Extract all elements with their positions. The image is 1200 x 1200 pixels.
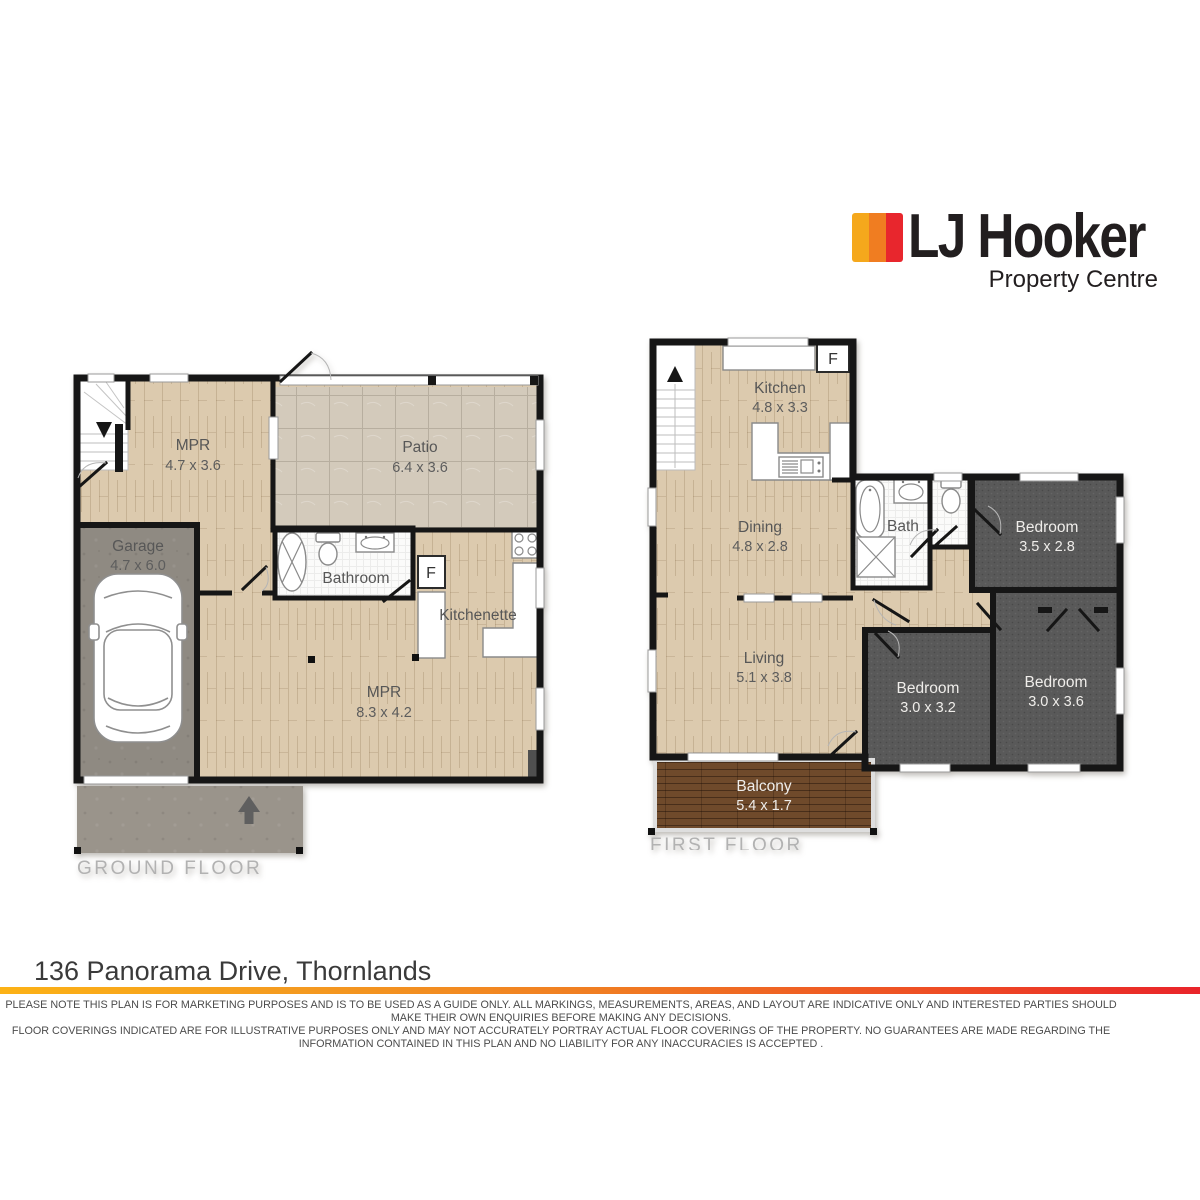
room-dims-garage: 4.7 x 6.0 [110,558,166,574]
logo-stripe-red [886,213,903,262]
counter [418,592,445,658]
fridge-label: F [426,565,436,582]
garage-door [84,776,188,784]
room-label-dining: Dining [738,519,782,536]
room-label-garage: Garage [112,538,164,555]
balcony-corner-marker [870,828,877,835]
room-dims-patio: 6.4 x 3.6 [392,460,448,476]
balcony-slider [688,753,778,761]
room-label-mpr2: MPR [367,684,401,701]
first-floor-plan: F [640,325,1140,850]
disclaimer-line-1: PLEASE NOTE THIS PLAN IS FOR MARKETING P… [0,999,1122,1025]
brand-gradient-bar [0,987,1200,994]
room-dims-kitchen: 4.8 x 3.3 [752,400,808,416]
disclaimer-text: PLEASE NOTE THIS PLAN IS FOR MARKETING P… [0,999,1122,1051]
counter [723,346,815,370]
room-label-bathroom: Bathroom [322,570,389,587]
disclaimer-line-2: FLOOR COVERINGS INDICATED ARE FOR ILLUST… [0,1025,1122,1051]
logo-squares-icon [852,213,903,262]
property-address: 136 Panorama Drive, Thornlands [34,956,431,987]
driveway-corner-marker [296,847,303,854]
ground-stairs [78,380,128,472]
room-label-kitchen: Kitchen [754,380,806,397]
room-label-mpr1: MPR [176,437,210,454]
room-label-bed1: Bedroom [1016,519,1079,536]
post [412,654,419,661]
ground-floor-plan: F [70,335,570,885]
room-label-bath: Bath [887,518,919,535]
post [308,656,315,663]
counter [830,423,850,480]
room-dims-living: 5.1 x 3.8 [736,670,792,686]
bedroom2-floor [865,630,993,768]
room-dims-balcony: 5.4 x 1.7 [736,798,792,814]
room-label-balcony: Balcony [736,778,791,795]
driveway [77,786,303,853]
room-label-patio: Patio [402,439,437,456]
logo-brand-text: LJ Hooker [908,201,1132,272]
room-dims-mpr2: 8.3 x 4.2 [356,705,412,721]
room-label-kitchenette: Kitchenette [439,607,517,624]
balcony-corner-marker [648,828,655,835]
room-label-living: Living [744,650,785,667]
car-icon [89,574,187,742]
ground-floor-caption: GROUND FLOOR [77,858,262,879]
room-dims-bed2: 3.0 x 3.2 [900,700,956,716]
room-dims-dining: 4.8 x 2.8 [732,539,788,555]
fridge-label: F [828,351,838,368]
room-dims-bed3: 3.0 x 3.6 [1028,694,1084,710]
floorplan-page: LJ Hooker Property Centre [0,0,1200,1200]
room-label-bed3: Bedroom [1025,674,1088,691]
room-label-bed2: Bedroom [897,680,960,697]
toilet-icon [316,533,340,542]
first-stairs [655,344,695,470]
logo-subtitle: Property Centre [908,266,1158,294]
room-dims-bed1: 3.5 x 2.8 [1019,539,1075,555]
logo-stripe-orange [869,213,886,262]
room-dims-mpr1: 4.7 x 3.6 [165,458,221,474]
balcony-deck [655,760,873,830]
logo-stripe-yellow [852,213,869,262]
patio-floor [273,387,540,530]
first-floor-caption: FIRST FLOOR [650,835,803,850]
driveway-corner-marker [74,847,81,854]
